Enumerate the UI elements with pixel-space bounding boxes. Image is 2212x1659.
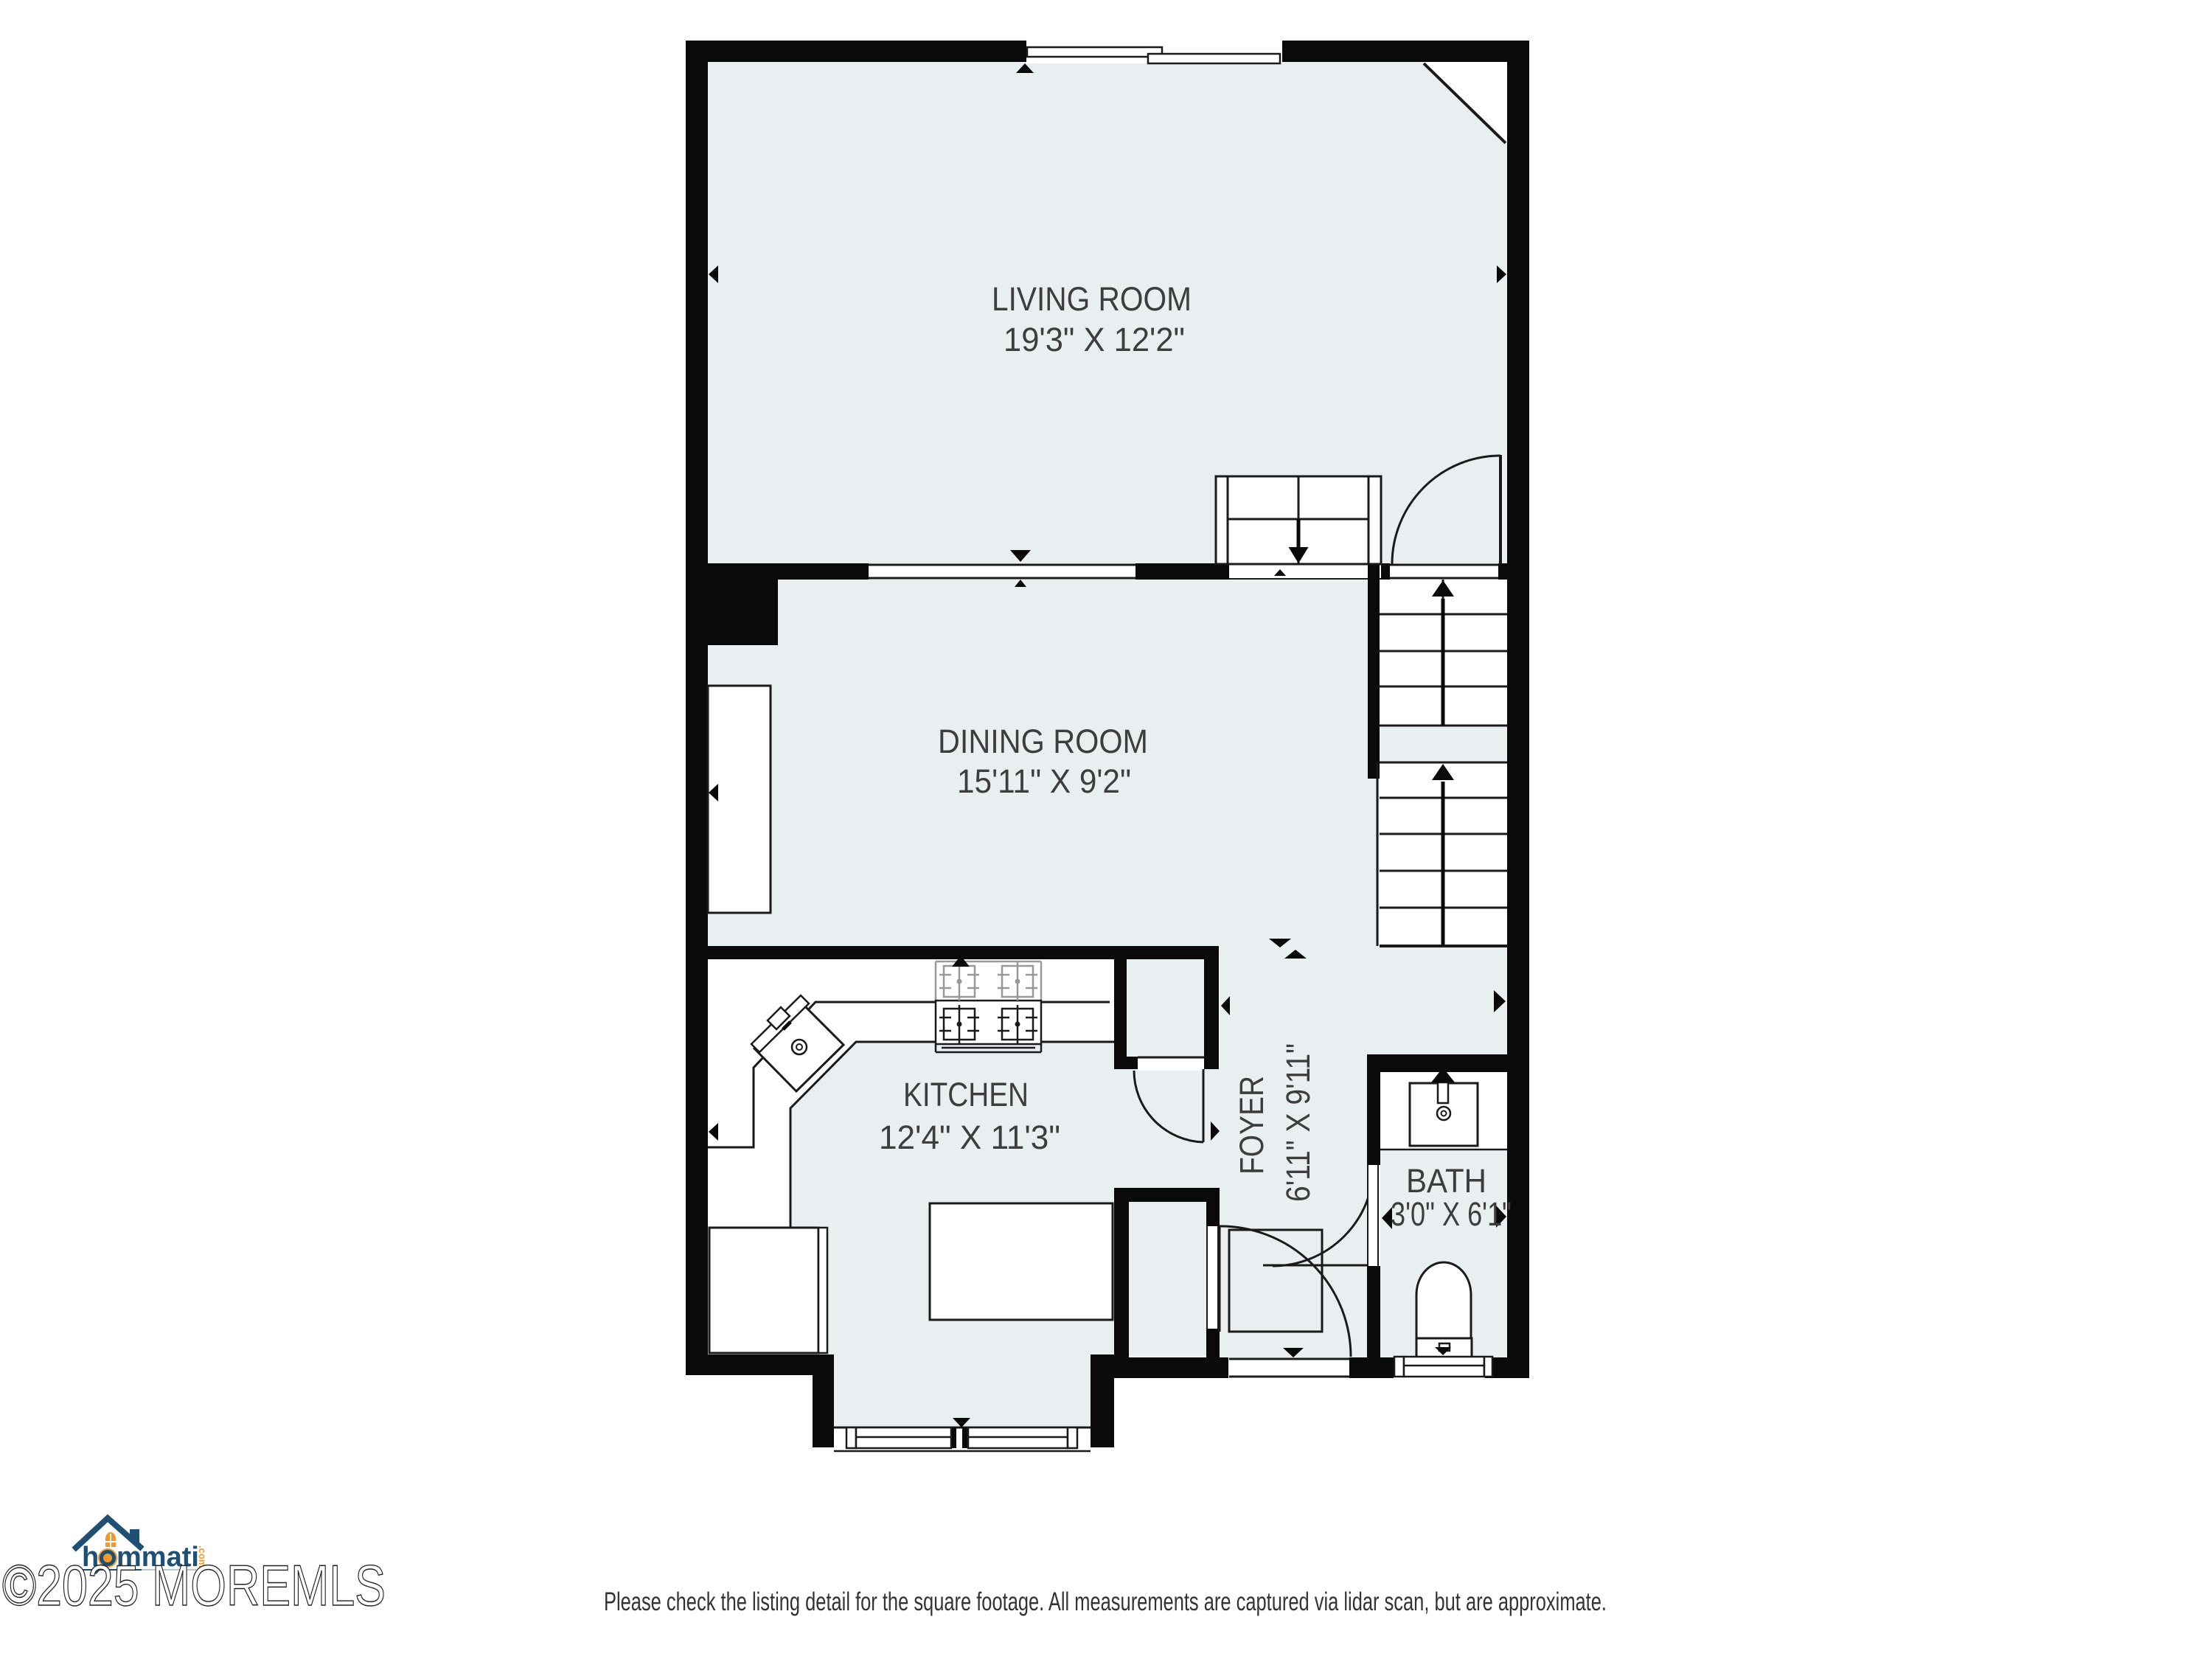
svg-text:DINING ROOM: DINING ROOM xyxy=(938,723,1148,760)
svg-text:KITCHEN: KITCHEN xyxy=(903,1076,1029,1113)
svg-text:12'4" X 11'3": 12'4" X 11'3" xyxy=(879,1119,1060,1156)
svg-text:6'11" X 9'11": 6'11" X 9'11" xyxy=(1279,1043,1317,1202)
svg-text:LIVING ROOM: LIVING ROOM xyxy=(992,280,1192,318)
svg-text:19'3" X 12'2": 19'3" X 12'2" xyxy=(1004,321,1185,358)
svg-text:BATH: BATH xyxy=(1406,1162,1486,1200)
svg-text:FOYER: FOYER xyxy=(1233,1076,1270,1175)
svg-text:15'11" X 9'2": 15'11" X 9'2" xyxy=(957,762,1131,800)
svg-text:3'0" X 6'1": 3'0" X 6'1" xyxy=(1391,1195,1512,1233)
svg-text:©2025 MOREMLS: ©2025 MOREMLS xyxy=(2,1553,386,1618)
svg-text:Please check the listing detai: Please check the listing detail for the … xyxy=(604,1587,1607,1616)
